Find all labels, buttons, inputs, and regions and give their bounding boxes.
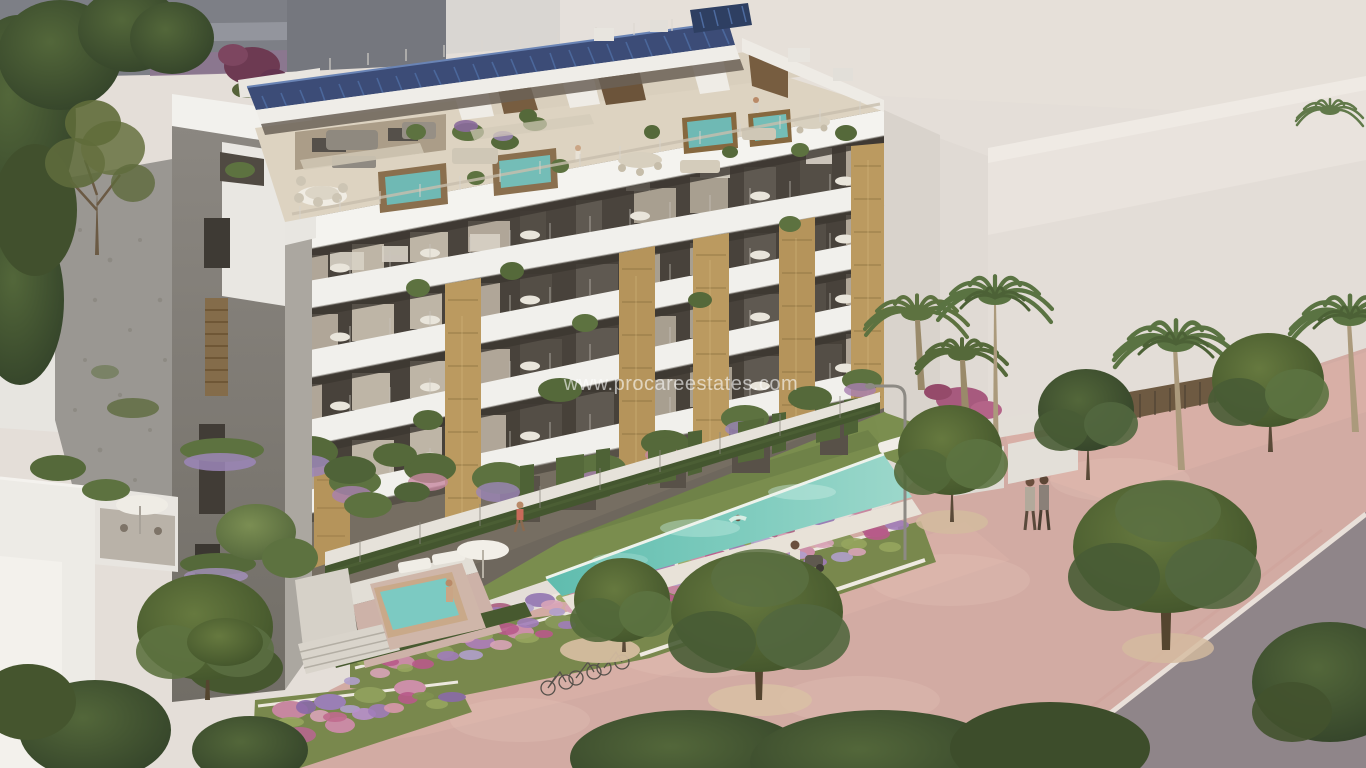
svg-text:www.procareestates.com: www.procareestates.com (563, 373, 798, 395)
